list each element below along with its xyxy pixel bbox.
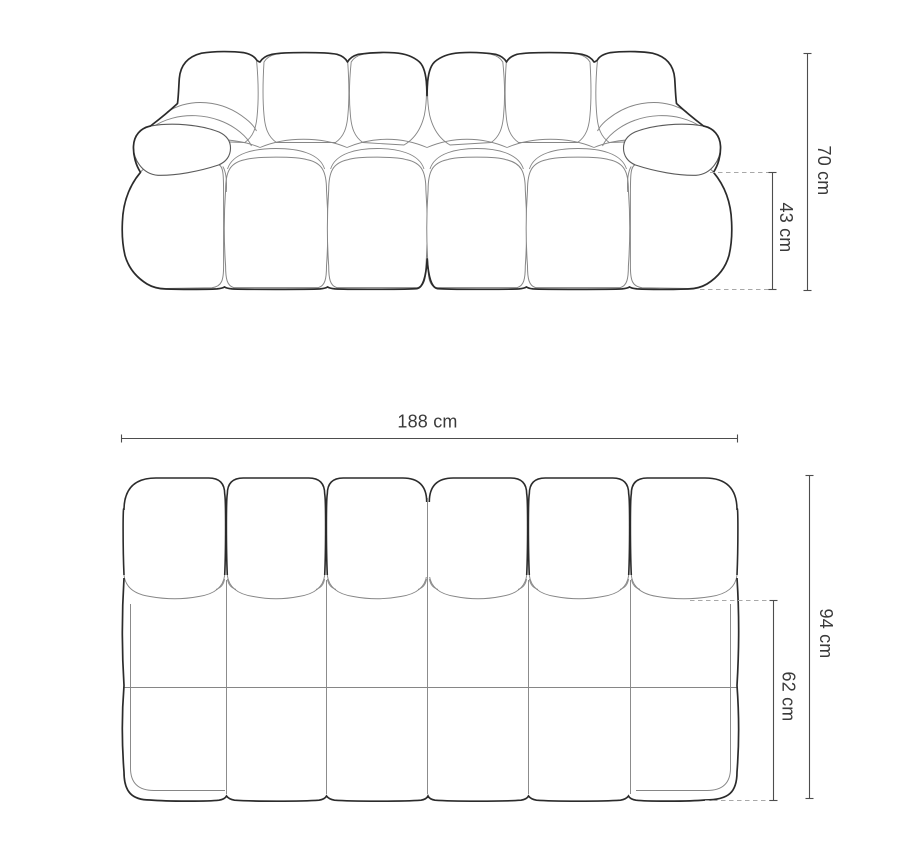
- svg-text:70 cm: 70 cm: [814, 145, 834, 195]
- svg-text:94 cm: 94 cm: [816, 608, 836, 658]
- svg-text:62 cm: 62 cm: [779, 671, 799, 721]
- svg-text:43 cm: 43 cm: [776, 202, 796, 252]
- svg-text:188 cm: 188 cm: [397, 412, 457, 432]
